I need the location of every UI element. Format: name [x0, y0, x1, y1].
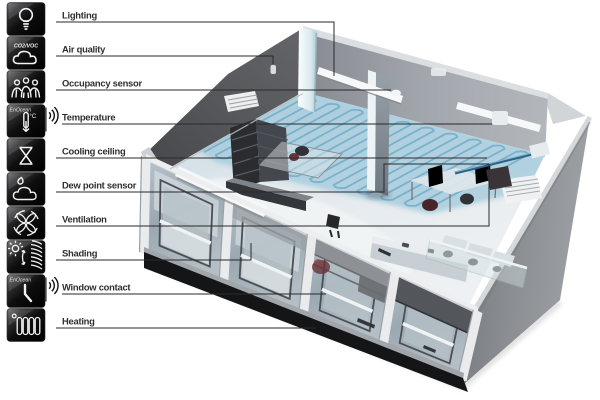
svg-text:Temperature: Temperature: [62, 112, 115, 123]
svg-text:Air quality: Air quality: [62, 44, 106, 55]
svg-text:Dew point sensor: Dew point sensor: [62, 180, 137, 191]
svg-text:Window contact: Window contact: [62, 282, 130, 293]
svg-text:EnOcean: EnOcean: [10, 278, 32, 284]
svg-text:CO2/VOC: CO2/VOC: [14, 44, 38, 50]
svg-text:Occupancy sensor: Occupancy sensor: [62, 78, 142, 89]
svg-text:°C: °C: [30, 114, 37, 120]
svg-text:Cooling ceiling: Cooling ceiling: [62, 146, 126, 157]
svg-text:Shading: Shading: [62, 248, 98, 259]
svg-text:Heating: Heating: [62, 316, 95, 327]
svg-text:Lighting: Lighting: [62, 10, 97, 21]
svg-text:Ventilation: Ventilation: [62, 214, 107, 225]
